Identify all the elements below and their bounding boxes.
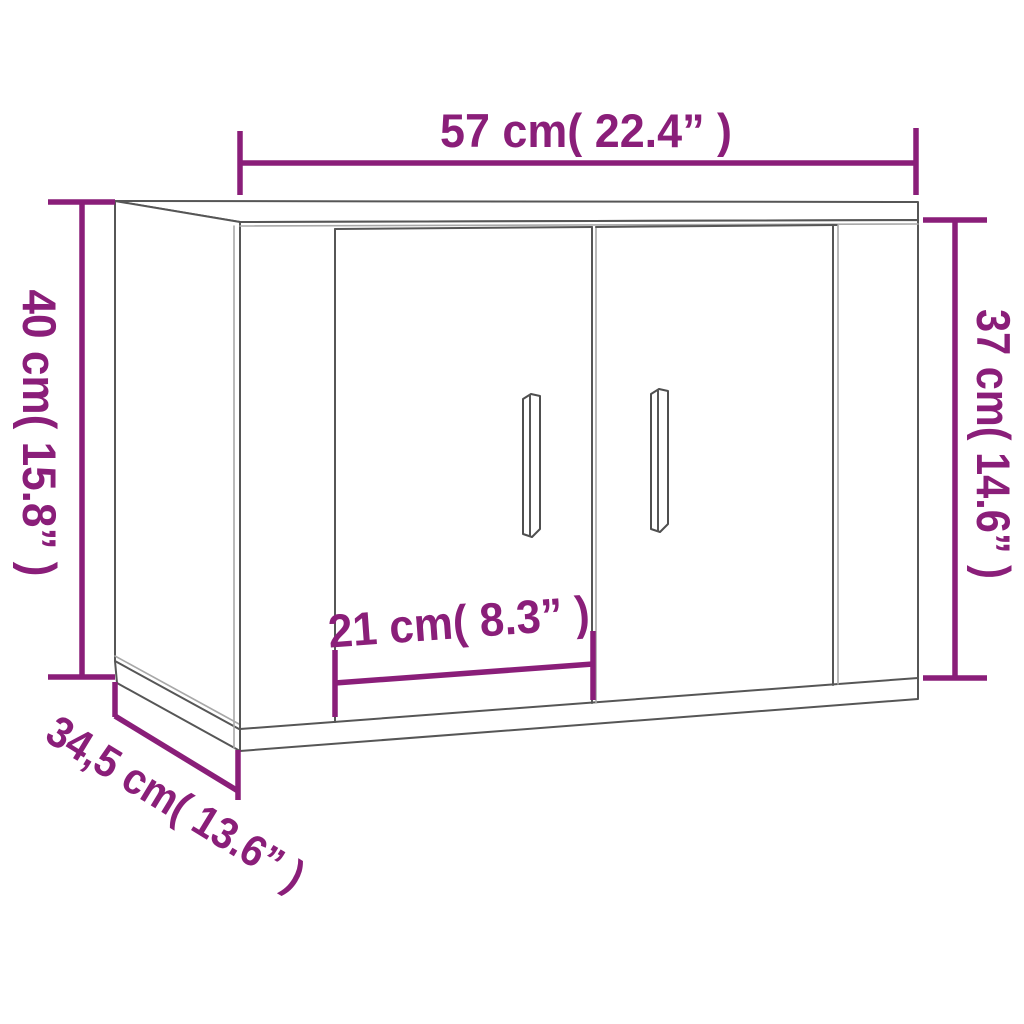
dim-width-label: 57 cm( 22.4” ) xyxy=(440,104,732,157)
dim-height-back-label: 40 cm( 15.8” ) xyxy=(13,290,66,577)
right-door-handle xyxy=(651,389,668,532)
cabinet-front-face xyxy=(240,220,918,751)
right-handle-body xyxy=(651,389,668,532)
cabinet-side-panel xyxy=(115,201,240,751)
cabinet-top-panel xyxy=(115,201,918,222)
dim-height-back: 40 cm( 15.8” ) xyxy=(13,202,115,677)
left-handle-body xyxy=(523,394,540,537)
dim-width: 57 cm( 22.4” ) xyxy=(240,104,916,195)
dim-height-front: 37 cm( 14.6” ) xyxy=(923,220,1020,678)
dimension-diagram: 57 cm( 22.4” ) 40 cm( 15.8” ) 37 cm( 14.… xyxy=(0,0,1024,1024)
left-door-handle xyxy=(523,394,540,537)
diagram-canvas: 57 cm( 22.4” ) 40 cm( 15.8” ) 37 cm( 14.… xyxy=(0,0,1024,1024)
dim-height-front-label: 37 cm( 14.6” ) xyxy=(967,309,1020,579)
